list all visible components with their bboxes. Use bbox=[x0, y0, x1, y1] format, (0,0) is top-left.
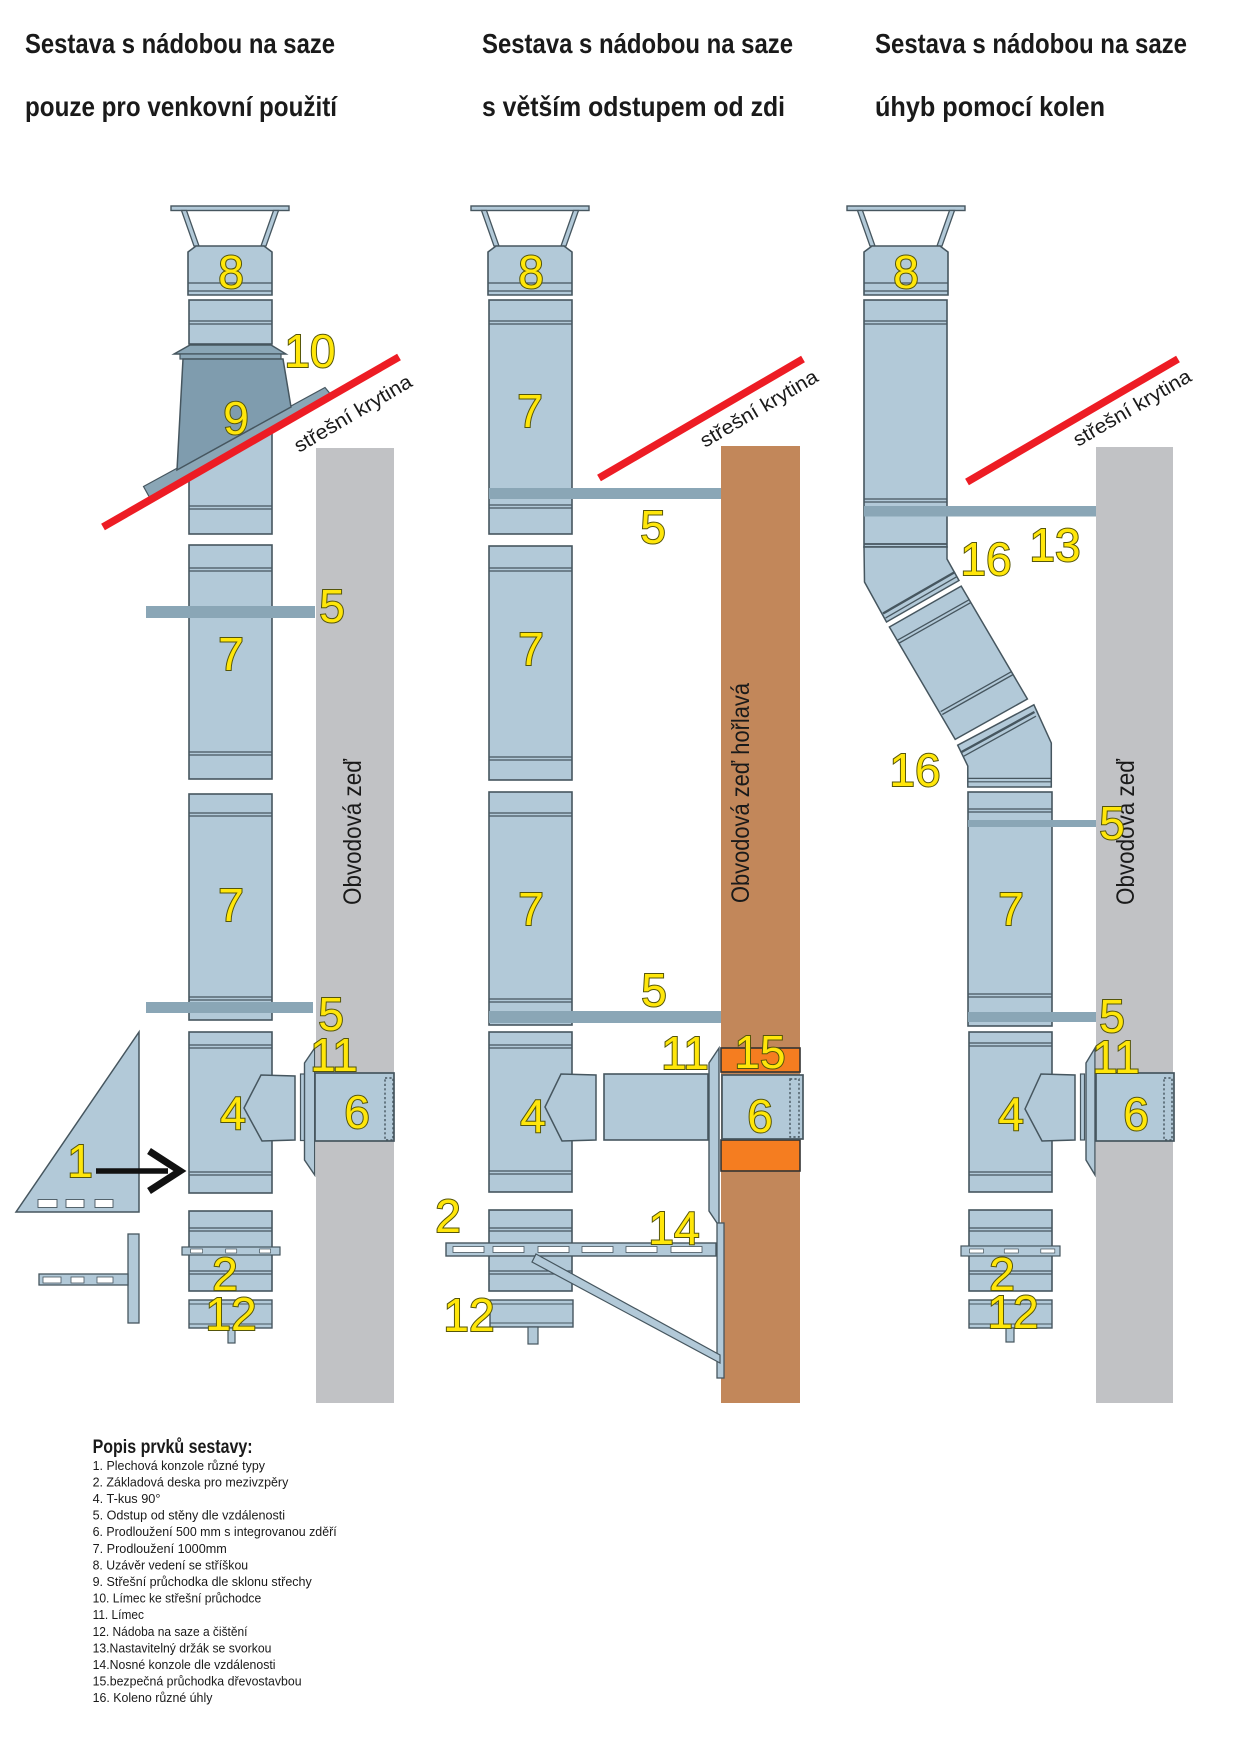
svg-text:2: 2 bbox=[435, 1190, 461, 1242]
svg-text:13.Nastavitelný držák se svork: 13.Nastavitelný držák se svorkou bbox=[93, 1640, 272, 1655]
svg-text:16: 16 bbox=[960, 533, 1011, 585]
svg-text:14: 14 bbox=[648, 1202, 699, 1254]
svg-text:11: 11 bbox=[661, 1027, 709, 1079]
svg-text:9. Střešní průchodka dle sklo: 9. Střešní průchodka dle sklonu střechy bbox=[93, 1574, 313, 1589]
svg-text:12: 12 bbox=[205, 1288, 256, 1340]
svg-text:15: 15 bbox=[734, 1026, 785, 1078]
svg-text:12: 12 bbox=[987, 1286, 1038, 1338]
svg-text:7: 7 bbox=[218, 879, 244, 931]
svg-text:8: 8 bbox=[518, 246, 544, 298]
svg-text:8: 8 bbox=[893, 246, 919, 298]
svg-text:Popis prvků sestavy:: Popis prvků sestavy: bbox=[93, 1436, 253, 1458]
svg-text:10: 10 bbox=[284, 325, 335, 377]
svg-text:7: 7 bbox=[518, 883, 544, 935]
svg-text:4. T-kus 90°: 4. T-kus 90° bbox=[93, 1491, 161, 1506]
svg-text:8. Uzávěr vedení se stříškou: 8. Uzávěr vedení se stříškou bbox=[93, 1557, 249, 1572]
svg-text:11: 11 bbox=[310, 1029, 358, 1081]
svg-text:5. Odstup od stěny dle vzdále: 5. Odstup od stěny dle vzdálenosti bbox=[93, 1508, 286, 1523]
svg-text:7. Prodloužení 1000mm: 7. Prodloužení 1000mm bbox=[93, 1541, 227, 1556]
svg-text:7: 7 bbox=[998, 883, 1024, 935]
svg-text:5: 5 bbox=[1099, 797, 1125, 849]
svg-text:14.Nosné konzole dle vzdálenos: 14.Nosné konzole dle vzdálenosti bbox=[93, 1657, 276, 1672]
svg-text:pouze pro venkovní použití: pouze pro venkovní použití bbox=[25, 91, 338, 122]
svg-text:7: 7 bbox=[518, 623, 544, 675]
svg-text:s větším odstupem od zdi: s větším odstupem od zdi bbox=[482, 91, 785, 122]
svg-text:Sestava s nádobou na saze: Sestava s nádobou na saze bbox=[25, 28, 335, 59]
svg-text:13: 13 bbox=[1029, 519, 1080, 571]
svg-text:15.bezpečná průchodka dřevosta: 15.bezpečná průchodka dřevostavbou bbox=[93, 1674, 302, 1689]
svg-text:5: 5 bbox=[319, 580, 345, 632]
svg-text:16. Koleno různé úhly: 16. Koleno různé úhly bbox=[93, 1690, 213, 1705]
svg-text:6: 6 bbox=[747, 1090, 773, 1142]
svg-text:Obvodová zeď: Obvodová zeď bbox=[339, 758, 367, 905]
svg-text:6: 6 bbox=[344, 1086, 370, 1138]
svg-text:6. Prodloužení 500 mm s integ: 6. Prodloužení 500 mm s integrovanou zdě… bbox=[93, 1524, 338, 1539]
svg-text:2. Základová deska pro mezivz: 2. Základová deska pro mezivzpěry bbox=[93, 1474, 289, 1489]
svg-text:Obvodová zeď hořlavá: Obvodová zeď hořlavá bbox=[727, 683, 755, 903]
svg-text:16: 16 bbox=[889, 744, 940, 796]
svg-text:Sestava s nádobou na saze: Sestava s nádobou na saze bbox=[875, 28, 1187, 59]
svg-text:Sestava s nádobou na saze: Sestava s nádobou na saze bbox=[482, 28, 793, 59]
svg-text:4: 4 bbox=[998, 1088, 1024, 1140]
svg-text:12: 12 bbox=[443, 1289, 494, 1341]
svg-text:6: 6 bbox=[1123, 1088, 1149, 1140]
svg-text:7: 7 bbox=[218, 628, 244, 680]
svg-text:8: 8 bbox=[218, 246, 244, 298]
svg-text:4: 4 bbox=[220, 1087, 246, 1139]
svg-text:11: 11 bbox=[1092, 1031, 1140, 1083]
svg-text:4: 4 bbox=[520, 1090, 546, 1142]
svg-text:5: 5 bbox=[641, 964, 667, 1016]
svg-text:12. Nádoba na saze a čištění: 12. Nádoba na saze a čištění bbox=[93, 1624, 248, 1639]
svg-text:5: 5 bbox=[640, 501, 666, 553]
svg-text:10. Límec ke střešní průchodce: 10. Límec ke střešní průchodce bbox=[93, 1591, 262, 1606]
svg-text:1. Plechová konzole různé typ: 1. Plechová konzole různé typy bbox=[93, 1458, 266, 1473]
svg-text:1: 1 bbox=[67, 1135, 93, 1187]
svg-text:úhyb pomocí kolen: úhyb pomocí kolen bbox=[875, 91, 1105, 122]
svg-text:9: 9 bbox=[223, 392, 249, 444]
svg-text:7: 7 bbox=[517, 385, 543, 437]
svg-text:11. Límec: 11. Límec bbox=[93, 1607, 145, 1622]
